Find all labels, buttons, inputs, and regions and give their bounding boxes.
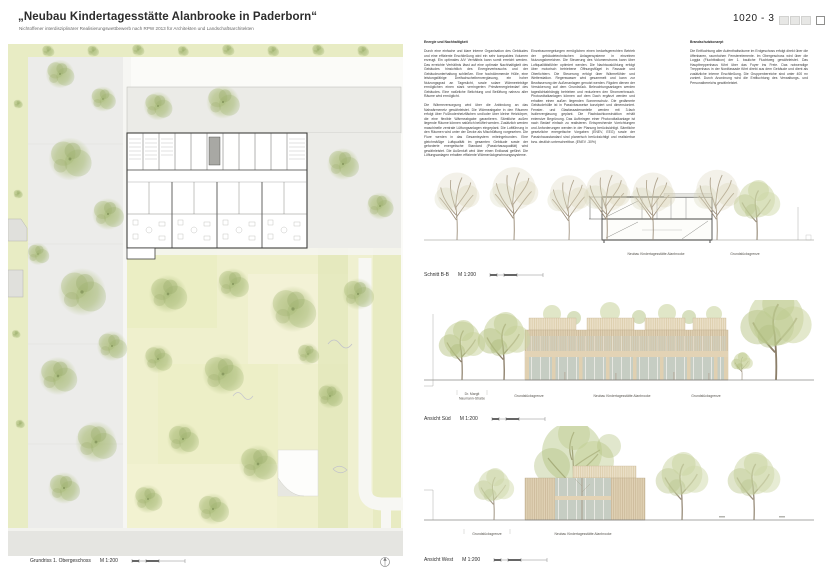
south-building xyxy=(525,318,728,380)
text-column-energy-cont: Einzelraumregelungen ermöglichen einen b… xyxy=(531,40,635,149)
section-caption: Schnitt B-B xyxy=(424,272,449,278)
south-scale: M 1:200 xyxy=(460,416,478,422)
west-building-label: Neubau Kindertagesstätte Alanbrooke xyxy=(554,532,611,536)
north-arrow-icon xyxy=(379,556,391,568)
section-caption-row: Schnitt B-B M 1:200 xyxy=(424,271,545,279)
site-plan-drawing xyxy=(8,44,403,556)
energy-heading: Energie und Nachhaltigkeit xyxy=(424,40,528,45)
plan-caption: Grundriss 1. Obergeschoss xyxy=(30,558,91,564)
energy-paragraph-2: Die Wärmeversorgung wird über die Anbind… xyxy=(424,103,528,157)
indicator-box xyxy=(779,16,789,26)
page-subtitle: Nichtoffener interdisziplinärer Realisie… xyxy=(19,26,254,31)
indicator-box-active xyxy=(816,16,825,26)
building-floor-plan xyxy=(127,133,307,259)
indicator-box xyxy=(790,16,800,26)
energy-paragraph-3: Einzelraumregelungen ermöglichen einen b… xyxy=(531,49,635,144)
competition-board: „Neubau Kindertagesstätte Alanbrooke in … xyxy=(0,0,825,583)
scale-bar-icon xyxy=(491,415,547,423)
text-column-energy: Energie und Nachhaltigkeit Durch eine ei… xyxy=(424,40,528,162)
south-street-label-2: Naumann-Straße xyxy=(459,397,485,401)
energy-paragraph-1: Durch eine einfache und klare interne Or… xyxy=(424,49,528,99)
entry-number: 1020 - 3 xyxy=(733,13,775,24)
south-caption-row: Ansicht Süd M 1:200 xyxy=(424,415,547,423)
west-boundary-label: Grundstücksgrenze xyxy=(472,532,502,536)
south-boundary-left-label: Grundstücksgrenze xyxy=(514,394,544,398)
section-drawing: Neubau Kindertagesstätte Alanbrooke Grun… xyxy=(424,165,814,265)
plan-caption-row: Grundriss 1. Obergeschoss M 1:200 xyxy=(30,557,187,565)
indicator-box xyxy=(801,16,811,26)
south-big-tree xyxy=(740,300,811,380)
south-boundary-right-label: Grundstücksgrenze xyxy=(691,394,721,398)
west-caption: Ansicht West xyxy=(424,557,453,563)
section-scale: M 1:200 xyxy=(458,272,476,278)
south-street-label-1: Dr. Margit xyxy=(465,392,480,396)
fire-paragraph-1: Die Entfluchtung aller Aufenthaltsräume … xyxy=(690,49,808,85)
scale-bar-icon xyxy=(489,271,545,279)
south-caption: Ansicht Süd xyxy=(424,416,451,422)
west-caption-row: Ansicht West M 1:200 xyxy=(424,556,549,564)
section-building-label: Neubau Kindertagesstätte Alanbrooke xyxy=(627,252,684,256)
south-elevation-drawing: Dr. Margit Naumann-Straße Grundstücksgre… xyxy=(424,300,814,412)
text-column-fire: Brandschutzkonzept Die Entfluchtung alle… xyxy=(690,40,808,90)
scale-bar-icon xyxy=(131,557,187,565)
scale-bar-icon xyxy=(493,556,549,564)
west-elevation-drawing: Grundstücksgrenze Neubau Kindertagesstät… xyxy=(424,426,814,548)
garden-canopy xyxy=(278,450,318,496)
fire-heading: Brandschutzkonzept xyxy=(690,40,808,45)
west-scale: M 1:200 xyxy=(462,557,480,563)
plan-scale: M 1:200 xyxy=(100,558,118,564)
section-boundary-label: Grundstücksgrenze xyxy=(730,252,760,256)
sheet-indicator xyxy=(779,16,825,26)
south-building-label: Neubau Kindertagesstätte Alanbrooke xyxy=(593,394,650,398)
page-title: „Neubau Kindertagesstätte Alanbrooke in … xyxy=(18,11,317,23)
